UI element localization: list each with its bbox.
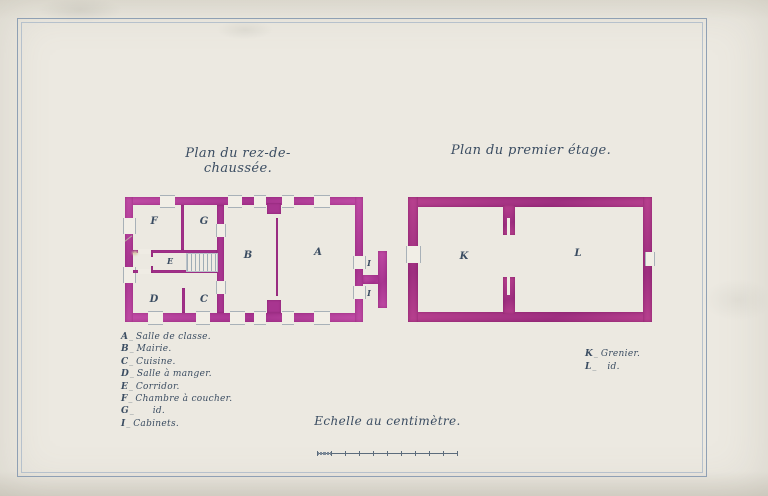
wall-segment — [125, 197, 133, 322]
room-label-i-bottom: I — [363, 288, 375, 298]
window-opening — [314, 195, 330, 208]
legend-label: Chambre à coucher. — [135, 394, 232, 404]
room-label-c: C — [196, 294, 212, 305]
flue-slot — [507, 277, 510, 295]
room-label-g: G — [196, 216, 212, 227]
window-opening — [254, 311, 266, 325]
door-jamb — [151, 266, 153, 273]
window-opening — [230, 311, 245, 325]
wall-segment — [217, 205, 224, 313]
legend-label: Mairie. — [137, 344, 172, 354]
title-first-floor: Plan du premier étage. — [450, 143, 612, 158]
window-opening — [254, 195, 266, 208]
legend-letter: F — [121, 394, 135, 404]
room-label-k: K — [456, 251, 472, 262]
legend-label: Salle de classe. — [136, 332, 211, 342]
pencil-smudge — [132, 251, 138, 255]
legend-label: Corridor. — [136, 382, 180, 392]
scale-tick — [387, 451, 388, 456]
legend-item: D Salle à manger. — [121, 369, 232, 381]
room-label-a: A — [310, 247, 326, 258]
chimney-stub — [267, 300, 281, 313]
legend-label: Cabinets. — [133, 419, 179, 429]
flue-slot — [507, 218, 510, 235]
scale-bar — [317, 453, 457, 454]
door-opening — [138, 249, 152, 254]
window-opening — [282, 195, 294, 208]
legend-label: Grenier. — [601, 349, 640, 359]
legend-letter: A — [121, 332, 136, 342]
scale-subtick — [330, 452, 331, 455]
room-label-e: E — [163, 256, 177, 266]
legend-item: B Mairie. — [121, 344, 232, 356]
room-label-l: L — [570, 248, 586, 259]
legend-letter: K — [585, 349, 601, 359]
legend-label: id. — [153, 406, 165, 416]
wall-segment — [182, 288, 185, 313]
scale-tick — [415, 451, 416, 456]
legend-label: Salle à manger. — [137, 369, 212, 379]
legend-letter: B — [121, 344, 137, 354]
legend-letter: E — [121, 382, 136, 392]
legend-letter: I — [121, 419, 133, 429]
room-label-b: B — [240, 250, 256, 261]
legend-letter: L — [585, 362, 599, 372]
window-opening — [314, 311, 330, 325]
legend-item: A Salle de classe. — [121, 332, 232, 344]
window-opening — [123, 218, 136, 234]
room-label-d: D — [146, 294, 162, 305]
scale-tick — [373, 451, 374, 456]
scale-tick — [443, 451, 444, 456]
legend-item: C Cuisine. — [121, 357, 232, 369]
legend-item: F Chambre à coucher. — [121, 394, 232, 406]
legend-label: id. — [607, 362, 619, 372]
door-opening — [216, 281, 226, 294]
scale-tick — [345, 451, 346, 456]
room-label-f: F — [146, 216, 162, 227]
scale-tick — [359, 451, 360, 456]
scale-tick — [401, 451, 402, 456]
legend-item: E Corridor. — [121, 382, 232, 394]
scale-caption: Echelle au centimètre. — [305, 414, 470, 428]
window-opening — [282, 311, 294, 325]
wall-segment — [276, 218, 278, 296]
door-jamb — [151, 250, 153, 257]
drawing-sheet: Plan du rez-de-chaussée. Plan du premier… — [0, 0, 768, 496]
window-opening — [645, 252, 655, 266]
room-label-i-top: I — [363, 258, 375, 268]
legend-item: L id. — [585, 362, 640, 375]
legend-label: Cuisine. — [136, 357, 175, 367]
legend-letter: D — [121, 369, 137, 379]
title-ground-floor: Plan du rez-de-chaussée. — [157, 146, 319, 176]
door-opening — [406, 246, 421, 263]
legend-first-floor: K Grenier. L id. — [585, 349, 640, 375]
staircase — [186, 253, 218, 272]
legend-letter: C — [121, 357, 136, 367]
window-opening — [196, 311, 210, 325]
legend-item: I Cabinets. — [121, 419, 232, 431]
legend-item: K Grenier. — [585, 349, 640, 362]
legend-ground-floor: A Salle de classe. B Mairie. C Cuisine. … — [121, 332, 232, 431]
wall-segment — [378, 251, 387, 308]
scale-tick — [429, 451, 430, 456]
wall-segment — [181, 205, 184, 250]
door-opening — [138, 269, 152, 274]
legend-item: G id. — [121, 406, 232, 418]
wall-segment — [408, 312, 652, 322]
window-opening — [228, 195, 242, 208]
scale-tick — [331, 451, 332, 456]
legend-letter: G — [121, 406, 137, 416]
window-opening — [148, 311, 163, 325]
scale-tick — [457, 451, 458, 456]
window-opening — [160, 195, 175, 208]
door-opening — [216, 224, 226, 237]
wall-segment — [408, 197, 652, 207]
chimney-stub — [267, 203, 281, 214]
